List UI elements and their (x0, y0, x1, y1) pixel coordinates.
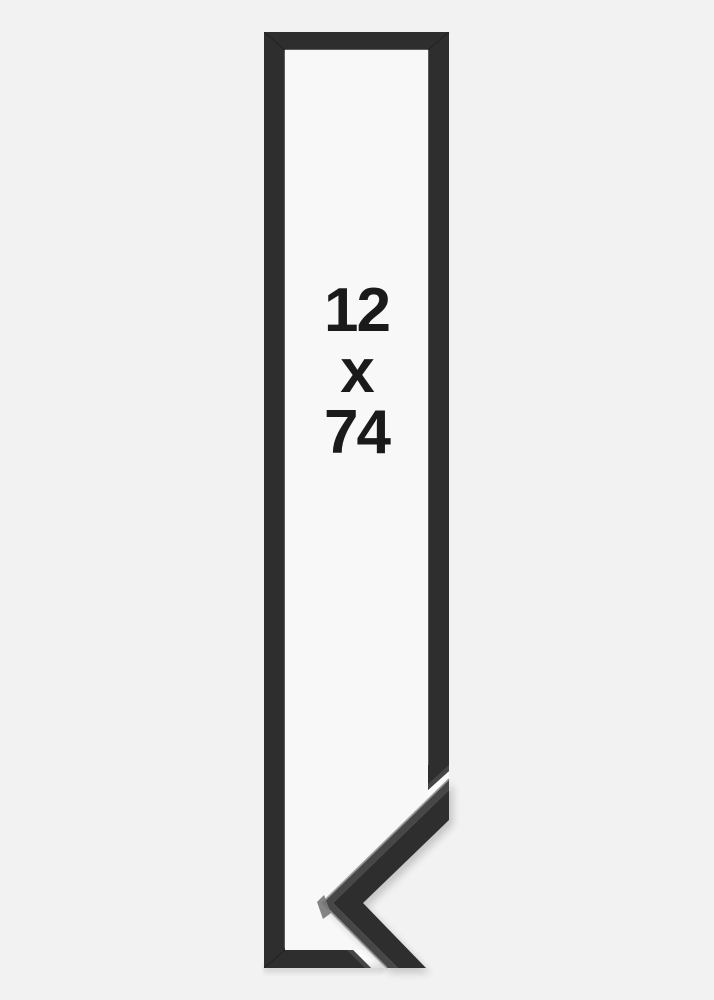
frame-left-bar (264, 32, 285, 968)
frame-top-bar (264, 32, 449, 50)
frame-product-image: 12 x 74 (0, 0, 714, 1000)
frame-illustration (0, 0, 714, 1000)
frame-right-bar (428, 50, 449, 790)
size-width-value: 12 (285, 280, 428, 341)
size-height-value: 74 (285, 402, 428, 463)
right-bar-inner-highlight (428, 50, 429, 765)
size-label: 12 x 74 (285, 280, 428, 463)
size-separator: x (285, 341, 428, 402)
left-bar-inner-highlight (284, 50, 285, 948)
top-bar-inner-highlight (285, 49, 428, 50)
frame-interior (285, 50, 428, 950)
